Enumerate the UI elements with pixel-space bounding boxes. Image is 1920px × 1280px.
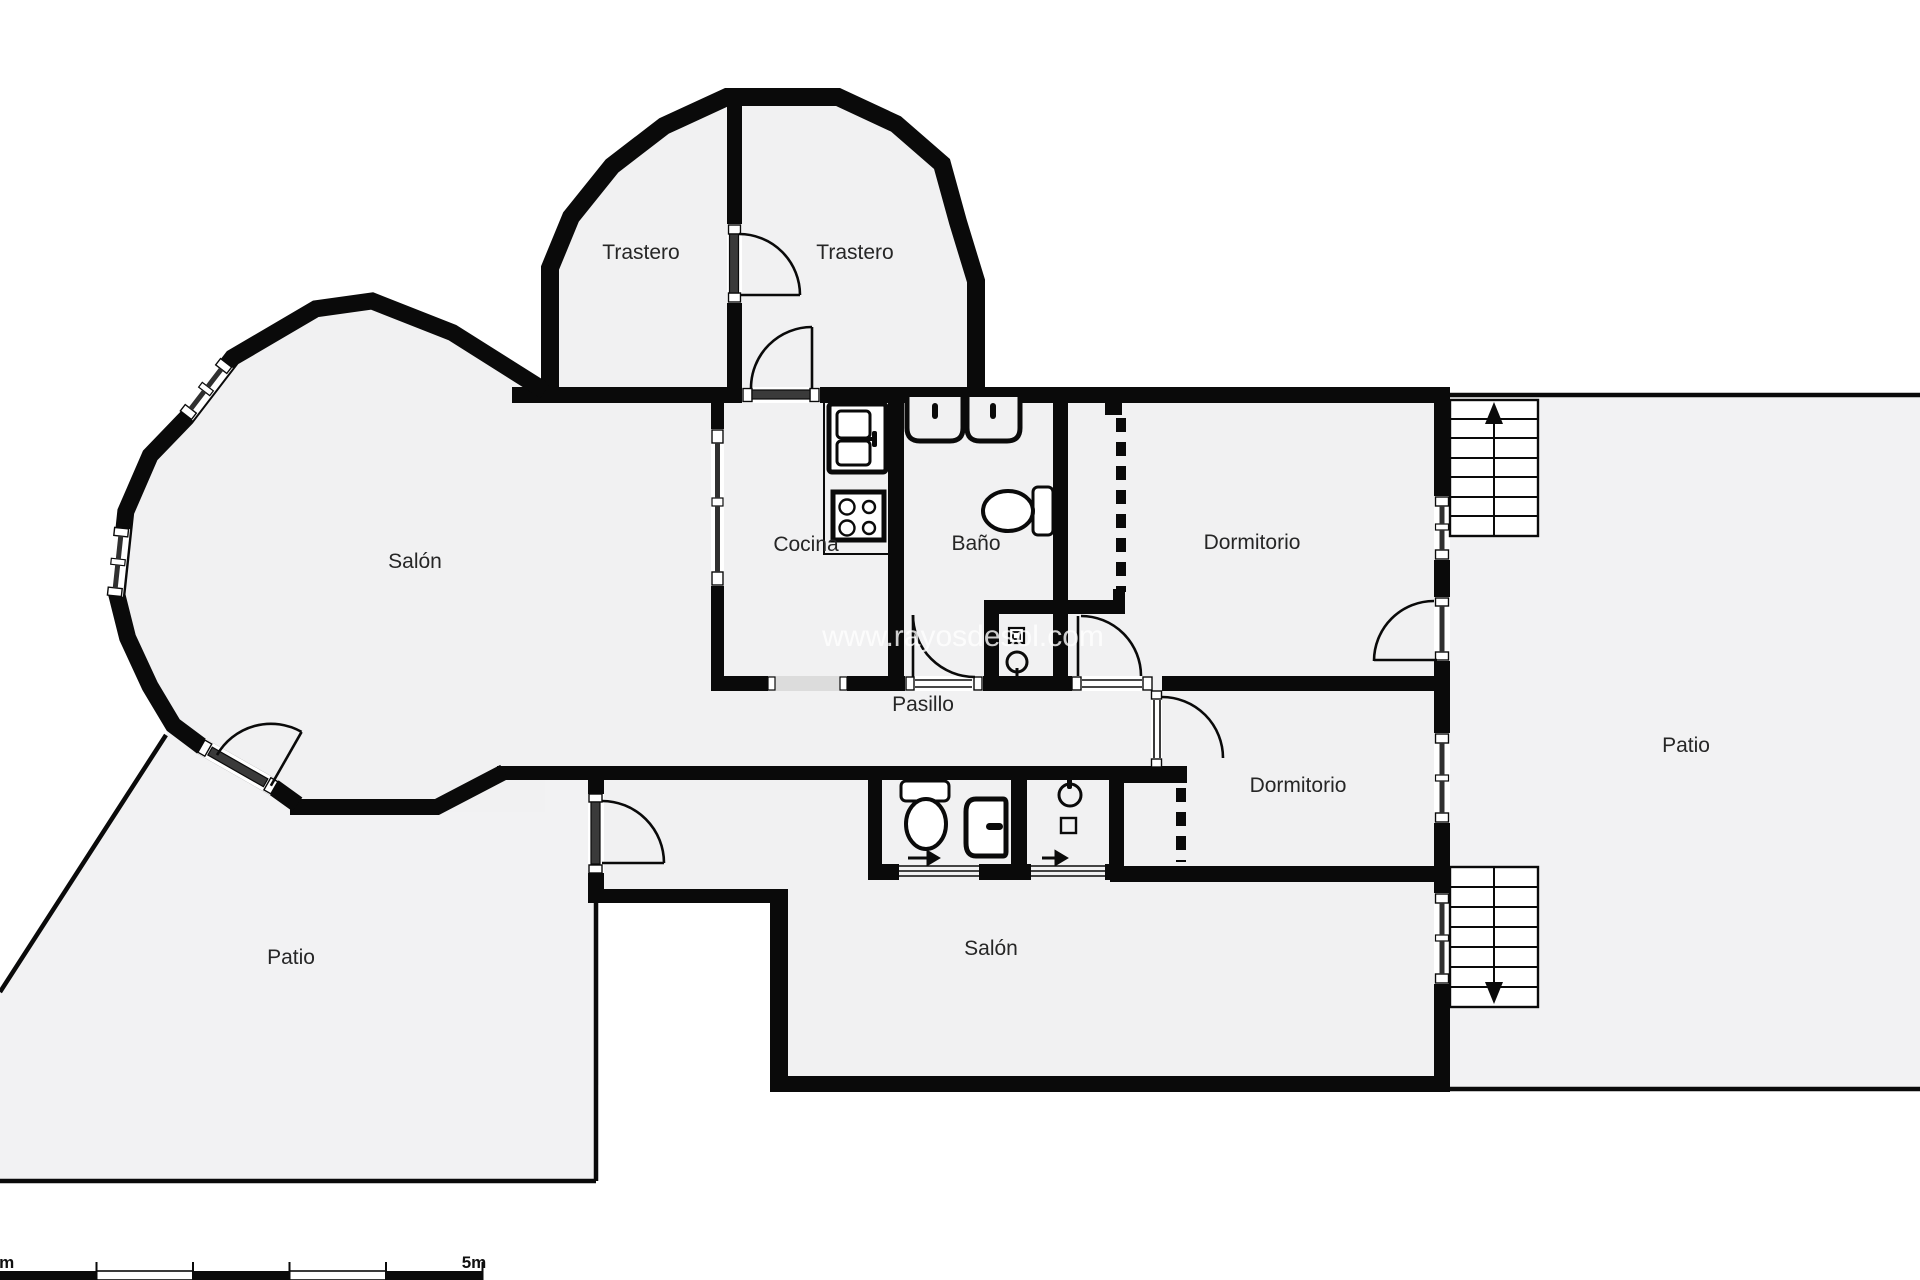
svg-text:0m: 0m <box>0 1253 14 1272</box>
svg-text:Salón: Salón <box>964 937 1018 960</box>
svg-text:Dormitorio: Dormitorio <box>1204 531 1301 554</box>
svg-text:Salón: Salón <box>388 550 442 573</box>
svg-text:Patio: Patio <box>1662 734 1710 757</box>
svg-text:Trastero: Trastero <box>602 241 679 264</box>
svg-text:Cocina: Cocina <box>773 533 839 556</box>
svg-text:Trastero: Trastero <box>816 241 893 264</box>
svg-text:Baño: Baño <box>951 532 1000 555</box>
svg-text:Pasillo: Pasillo <box>892 693 954 716</box>
svg-text:5m: 5m <box>462 1253 487 1272</box>
svg-text:Dormitorio: Dormitorio <box>1250 774 1347 797</box>
svg-text:Patio: Patio <box>267 946 315 969</box>
svg-text:www.rayosdesol.com: www.rayosdesol.com <box>821 620 1104 653</box>
